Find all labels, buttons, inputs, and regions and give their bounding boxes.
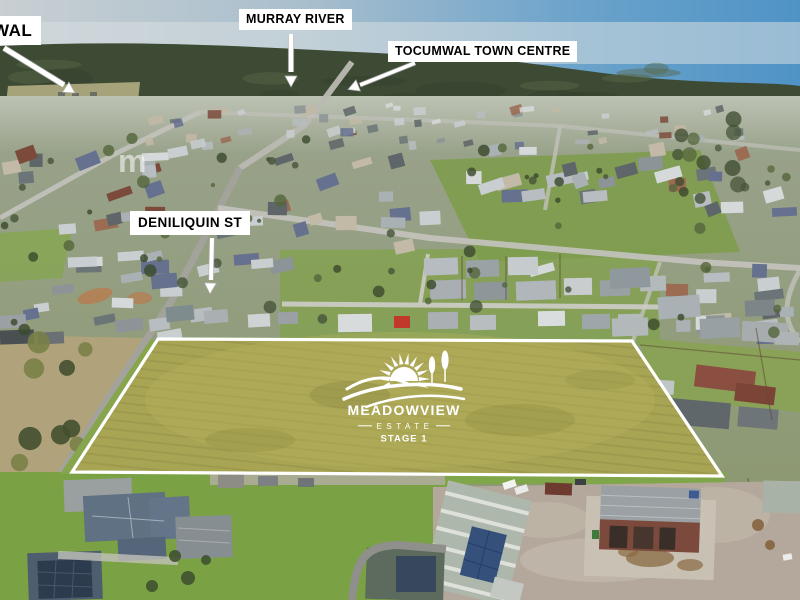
tree (555, 222, 562, 229)
house-roof (294, 105, 306, 114)
house-roof (737, 406, 779, 429)
house-roof (340, 128, 353, 136)
tree (768, 327, 780, 339)
house-roof (575, 139, 590, 144)
house-roof (508, 257, 538, 276)
bush (752, 519, 764, 531)
house-roof (68, 256, 97, 267)
tree (700, 262, 711, 273)
tree (18, 324, 30, 336)
palm-tree (169, 550, 181, 562)
house-roof (399, 136, 408, 144)
tree (211, 183, 215, 187)
house-roof (248, 313, 271, 327)
tree (694, 223, 705, 234)
tree (525, 175, 530, 180)
tree (725, 160, 741, 176)
tree (730, 177, 746, 193)
house-roof (516, 280, 557, 300)
palm-tree (181, 571, 195, 585)
label-murray-river: MURRAY RIVER (239, 9, 352, 30)
house-roof (413, 107, 426, 115)
house-roof (394, 316, 410, 328)
house-roof (721, 201, 744, 213)
house-roof (419, 211, 440, 226)
tree (715, 145, 722, 152)
field-blotch (465, 404, 575, 436)
logo-stage-line: STAGE 1 (381, 434, 428, 445)
tree (464, 245, 476, 257)
label-tocumwal-partial: WAL (0, 16, 41, 45)
tree (682, 147, 697, 162)
tree (782, 173, 791, 182)
tree (292, 162, 299, 169)
machinery-shed (599, 485, 701, 552)
tree (687, 132, 700, 145)
tree (695, 193, 706, 204)
listing-aerial-photo: MEADOWVIEW ESTATE STAGE 1 WAL MURRAY RIV… (0, 0, 800, 600)
tree (1, 222, 9, 230)
house-roof (660, 116, 668, 123)
tree (373, 286, 385, 298)
house-roof (612, 317, 649, 336)
tree (18, 427, 41, 450)
house-roof (424, 257, 459, 275)
tree (87, 209, 92, 214)
tree (478, 145, 490, 157)
bottom-properties-layer (0, 472, 800, 600)
house-roof (286, 130, 295, 138)
tree (19, 184, 26, 191)
tree (268, 157, 276, 165)
house-roof (552, 108, 561, 113)
tree (264, 301, 277, 314)
bush (765, 540, 775, 550)
tree (59, 360, 75, 376)
tree (28, 252, 38, 262)
house-roof (336, 216, 357, 230)
house-roof (602, 113, 610, 118)
tree (140, 254, 148, 262)
tree (773, 305, 781, 313)
tree (696, 155, 710, 169)
tree (51, 425, 70, 444)
house-roof (319, 114, 328, 122)
tree (587, 144, 593, 150)
house-roof (338, 314, 372, 333)
tree (565, 286, 571, 292)
tree (596, 168, 602, 174)
tree (675, 177, 684, 186)
house-roof (538, 311, 565, 326)
tree (11, 319, 18, 326)
house-roof (470, 315, 496, 330)
house-roof (676, 320, 691, 332)
house-roof (393, 106, 400, 111)
house-roof (745, 299, 776, 317)
tree (318, 314, 328, 324)
tree (533, 173, 538, 178)
tree (467, 268, 473, 274)
house-roof (293, 118, 307, 125)
house-roof (582, 314, 610, 329)
tree (426, 280, 436, 290)
house-roof (545, 483, 572, 496)
house-roof (610, 267, 651, 289)
house-roof (428, 312, 458, 330)
house-roof (659, 132, 671, 138)
house-roof (752, 264, 767, 278)
house-roof (258, 476, 278, 486)
house-roof (477, 111, 486, 119)
house-roof (666, 284, 688, 297)
tree (467, 167, 476, 176)
tree (470, 300, 483, 313)
scene-svg: MEADOWVIEW ESTATE STAGE 1 (0, 0, 800, 600)
logo-estate-line: ESTATE (377, 422, 434, 431)
tree (648, 318, 660, 330)
tree (767, 165, 775, 173)
tree (555, 197, 560, 202)
house-roof (772, 207, 797, 217)
poplar-tree (429, 357, 435, 374)
palm-tree (201, 555, 211, 565)
house-roof (218, 473, 244, 488)
palm-tree (146, 580, 158, 592)
house-roof (703, 272, 729, 282)
photo-watermark: m (118, 143, 146, 180)
tree (679, 187, 689, 197)
house-roof (638, 156, 663, 172)
tree (387, 229, 395, 237)
house-roof (18, 171, 34, 184)
house-roof (112, 298, 134, 309)
house-roof (117, 251, 144, 262)
house-roof (379, 191, 393, 202)
solar-panels (396, 556, 436, 592)
aerodrome-building (90, 92, 97, 96)
tree (677, 314, 684, 321)
house-roof (700, 317, 741, 339)
solar-panels (37, 559, 92, 599)
tree (669, 184, 677, 192)
tree (726, 111, 742, 127)
tree (177, 277, 188, 288)
tree (64, 240, 75, 251)
house-roof (519, 147, 537, 155)
house-roof (381, 217, 406, 228)
logo-name: MEADOWVIEW (347, 402, 460, 418)
house-roof (408, 141, 416, 151)
tree (11, 454, 28, 471)
deniliquin-st-arrow (211, 238, 212, 280)
tree (333, 265, 341, 273)
tree (217, 153, 227, 163)
tree (47, 158, 54, 165)
tree (554, 177, 564, 187)
house-roof (278, 312, 298, 325)
tree (103, 145, 114, 156)
tree (425, 297, 432, 304)
paddock-lawn (430, 150, 740, 262)
house-roof (165, 305, 194, 323)
forest-light (644, 63, 669, 75)
tree (314, 274, 322, 282)
tree (257, 219, 261, 223)
tree (765, 180, 770, 185)
house-roof (208, 110, 222, 118)
tree (157, 256, 163, 262)
tree (498, 143, 507, 152)
field-blotch (565, 370, 635, 390)
house-roof (575, 479, 586, 485)
tree (675, 129, 689, 143)
house-roof (298, 478, 314, 487)
house-roof (583, 190, 608, 203)
forest-light (520, 81, 580, 91)
tree (603, 174, 608, 179)
label-town-centre: TOCUMWAL TOWN CENTRE (388, 41, 577, 62)
tree (672, 149, 683, 160)
green-bin (592, 530, 599, 539)
field-blotch (205, 428, 295, 452)
house-roof (414, 119, 422, 127)
tree (28, 331, 50, 353)
house-roof (709, 171, 723, 181)
house-roof (151, 273, 178, 290)
house-roof (762, 480, 800, 513)
tree (274, 194, 286, 206)
house-roof (203, 309, 228, 324)
tree (10, 214, 18, 222)
tree (144, 264, 156, 276)
dirt-spill (677, 559, 703, 571)
forest-light (601, 74, 652, 83)
house-roof (394, 118, 404, 126)
poplar-tree (441, 351, 448, 370)
house-roof (58, 223, 76, 235)
tree (24, 358, 44, 378)
tree (302, 135, 310, 143)
house-roof (175, 515, 232, 559)
label-deniliquin-st: DENILIQUIN ST (130, 211, 250, 235)
tree (502, 282, 508, 288)
tree (388, 268, 395, 275)
tree (78, 342, 92, 356)
